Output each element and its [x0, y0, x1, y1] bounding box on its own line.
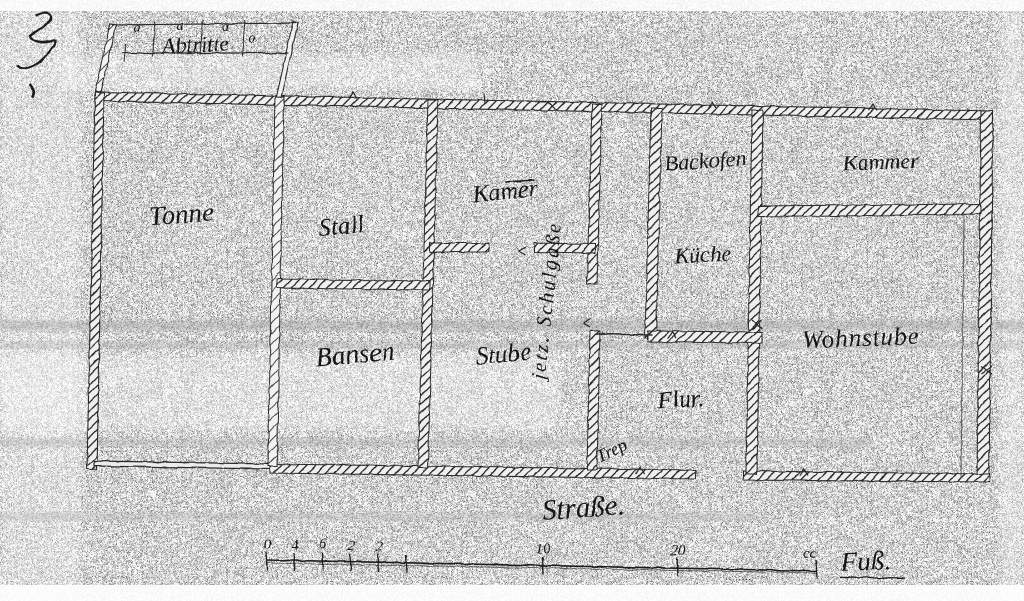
svg-text:Kammer: Kammer	[841, 148, 919, 176]
svg-text:20: 20	[671, 543, 687, 559]
svg-text:Küche: Küche	[673, 241, 732, 269]
svg-text:4: 4	[291, 538, 299, 554]
svg-text:Flur.: Flur.	[656, 386, 704, 414]
svg-text:Straße.: Straße.	[541, 489, 626, 527]
svg-text:a: a	[222, 20, 229, 35]
svg-text:a: a	[134, 21, 141, 36]
svg-text:Stall: Stall	[317, 211, 365, 242]
svg-text:2: 2	[347, 538, 355, 554]
svg-text:Abtritte: Abtritte	[159, 30, 230, 59]
svg-text:Fuß.: Fuß.	[839, 545, 891, 577]
svg-text:10: 10	[536, 541, 552, 557]
svg-text:6: 6	[319, 536, 327, 552]
svg-text:Stube: Stube	[475, 339, 533, 371]
svg-text:Wohnstube: Wohnstube	[801, 323, 920, 354]
svg-text:o: o	[249, 31, 256, 46]
svg-text:.........: .........	[725, 572, 754, 582]
svg-text:2: 2	[375, 539, 383, 555]
svg-text:a: a	[177, 19, 184, 34]
svg-text:Tonne: Tonne	[148, 197, 215, 231]
svg-text:0: 0	[263, 537, 271, 553]
svg-text:cc: cc	[803, 546, 817, 562]
